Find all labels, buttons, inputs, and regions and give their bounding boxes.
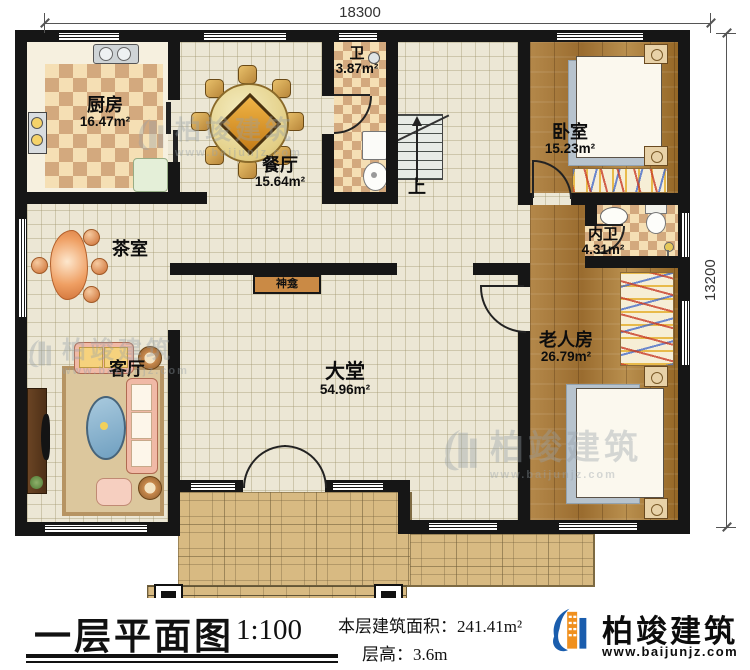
bath-label: 卫 3.87m² bbox=[327, 46, 387, 76]
elder-area: 26.79m² bbox=[516, 350, 616, 364]
toilet-seat-dot bbox=[371, 172, 377, 178]
washing-machine bbox=[362, 131, 387, 160]
elder-nightstand bbox=[644, 498, 668, 519]
sofa-cushion bbox=[131, 440, 152, 467]
tea-stool bbox=[83, 229, 100, 246]
brand-logo-icon bbox=[548, 604, 594, 658]
window-front-left bbox=[190, 482, 236, 492]
window-hall-south bbox=[428, 522, 498, 532]
elder-name: 老人房 bbox=[516, 331, 616, 350]
bath-name: 卫 bbox=[327, 46, 387, 62]
floor-height-value: 3.6m bbox=[413, 645, 447, 664]
bedroom-wardrobe bbox=[572, 168, 668, 193]
elder-closet bbox=[620, 272, 674, 366]
stairs-up-label: 上 bbox=[402, 178, 432, 197]
fridge bbox=[133, 158, 168, 192]
window-dining bbox=[203, 32, 287, 42]
title-block: 一层平面图 1:100 本层建筑面积：241.41m² 层高：3.6m 柏竣建筑… bbox=[0, 598, 750, 670]
sofa-cushion bbox=[131, 384, 152, 411]
floor-plan-canvas: 上 神龛 bbox=[0, 0, 750, 670]
porch-right bbox=[410, 534, 595, 587]
tea-stool bbox=[91, 258, 108, 275]
title-underline-thick bbox=[26, 654, 338, 658]
window-elder-south bbox=[558, 522, 638, 532]
tea-stool bbox=[83, 286, 100, 303]
dining-label: 餐厅 15.64m² bbox=[230, 156, 330, 189]
kitchen-label: 厨房 16.47m² bbox=[55, 96, 155, 129]
bath-door-leaf bbox=[334, 94, 370, 96]
coffee-table-dot bbox=[100, 422, 108, 430]
wall-bedroom-bottom-right bbox=[571, 193, 678, 205]
wall-right bbox=[678, 30, 690, 532]
ensuite-area: 4.31m² bbox=[568, 243, 638, 257]
kitchen-sink-bowl-right bbox=[117, 47, 131, 61]
wall-kitchen-bottom bbox=[15, 192, 207, 204]
side-table bbox=[138, 476, 162, 500]
ensuite-name: 内卫 bbox=[568, 227, 638, 243]
stove-burner-bottom bbox=[31, 134, 43, 146]
tea-room-label: 茶室 bbox=[100, 240, 160, 259]
dining-area: 15.64m² bbox=[230, 175, 330, 189]
kitchen-name: 厨房 bbox=[55, 96, 155, 115]
elder-door-leaf bbox=[480, 285, 524, 287]
wall-elder-west-upper bbox=[518, 263, 530, 287]
stair-direction-line bbox=[416, 126, 418, 182]
elder-nightstand bbox=[644, 366, 668, 387]
window-living bbox=[44, 524, 148, 534]
dimension-line-right bbox=[726, 33, 727, 528]
kitchen-sink-bowl-left bbox=[99, 47, 113, 61]
bath-area: 3.87m² bbox=[327, 62, 387, 76]
bedroom-label: 卧室 15.23m² bbox=[528, 123, 612, 156]
window-ensuite bbox=[680, 212, 690, 258]
dimension-line-top bbox=[45, 23, 711, 24]
wall-ensuite-left bbox=[585, 205, 597, 226]
window-bath bbox=[338, 32, 378, 42]
stove-burner-top bbox=[31, 117, 43, 129]
wall-bath-right bbox=[386, 42, 398, 204]
plan-scale: 1:100 bbox=[236, 614, 302, 647]
elder-bed bbox=[576, 388, 664, 498]
window-front-right bbox=[332, 482, 384, 492]
porch-left bbox=[178, 492, 412, 587]
ensuite-toilet-bowl bbox=[646, 212, 666, 234]
ottoman bbox=[96, 478, 132, 506]
floor-area-value: 241.41m² bbox=[457, 617, 522, 636]
title-underline-thin bbox=[26, 661, 338, 663]
bedroom-nightstand bbox=[644, 44, 668, 64]
floor-height-row: 层高：3.6m bbox=[362, 640, 447, 665]
bedroom-nightstand bbox=[644, 146, 668, 166]
hall-area: 54.96m² bbox=[300, 383, 390, 397]
tea-table bbox=[50, 230, 88, 300]
dining-name: 餐厅 bbox=[230, 156, 330, 175]
hall-name: 大堂 bbox=[300, 362, 390, 383]
window-kitchen bbox=[58, 32, 120, 42]
tv bbox=[41, 414, 50, 460]
wall-kitchen-right-upper bbox=[168, 42, 180, 100]
floor-height-label: 层高： bbox=[362, 645, 413, 664]
bedroom-name: 卧室 bbox=[528, 123, 612, 142]
kitchen-sliding-door bbox=[173, 130, 178, 162]
elder-label: 老人房 26.79m² bbox=[516, 331, 616, 364]
tea-stool bbox=[31, 257, 48, 274]
sofa-cushion bbox=[131, 412, 152, 439]
plan-title: 一层平面图 bbox=[34, 606, 234, 660]
living-label: 客厅 bbox=[97, 360, 157, 379]
ensuite-label: 内卫 4.31m² bbox=[568, 227, 638, 257]
dimension-width-label: 18300 bbox=[300, 4, 420, 21]
window-elder-east bbox=[680, 300, 690, 366]
brand-website: www.baijunjz.com bbox=[602, 644, 738, 659]
dining-chair bbox=[191, 112, 210, 131]
window-tea-room bbox=[17, 218, 27, 318]
kitchen-sliding-door bbox=[166, 102, 171, 134]
floor-area-row: 本层建筑面积：241.41m² bbox=[338, 612, 522, 637]
shrine-cabinet: 神龛 bbox=[253, 275, 321, 294]
bedroom-area: 15.23m² bbox=[528, 142, 612, 156]
kitchen-area: 16.47m² bbox=[55, 115, 155, 129]
window-bedroom bbox=[556, 32, 644, 42]
wall-shrine bbox=[170, 263, 397, 275]
wall-living-divider bbox=[168, 330, 180, 536]
plant bbox=[30, 476, 43, 489]
wall-bedroom-bottom-left bbox=[518, 193, 533, 205]
dimension-height-label: 13200 bbox=[702, 240, 722, 320]
dining-chair bbox=[238, 65, 257, 84]
floor-area-label: 本层建筑面积： bbox=[338, 617, 457, 636]
stair-arrow-head bbox=[412, 116, 422, 126]
hall-label: 大堂 54.96m² bbox=[300, 362, 390, 397]
bedroom-door-leaf bbox=[532, 160, 534, 198]
wall-ensuite-bottom bbox=[585, 256, 678, 268]
shower-head-icon bbox=[664, 242, 674, 252]
